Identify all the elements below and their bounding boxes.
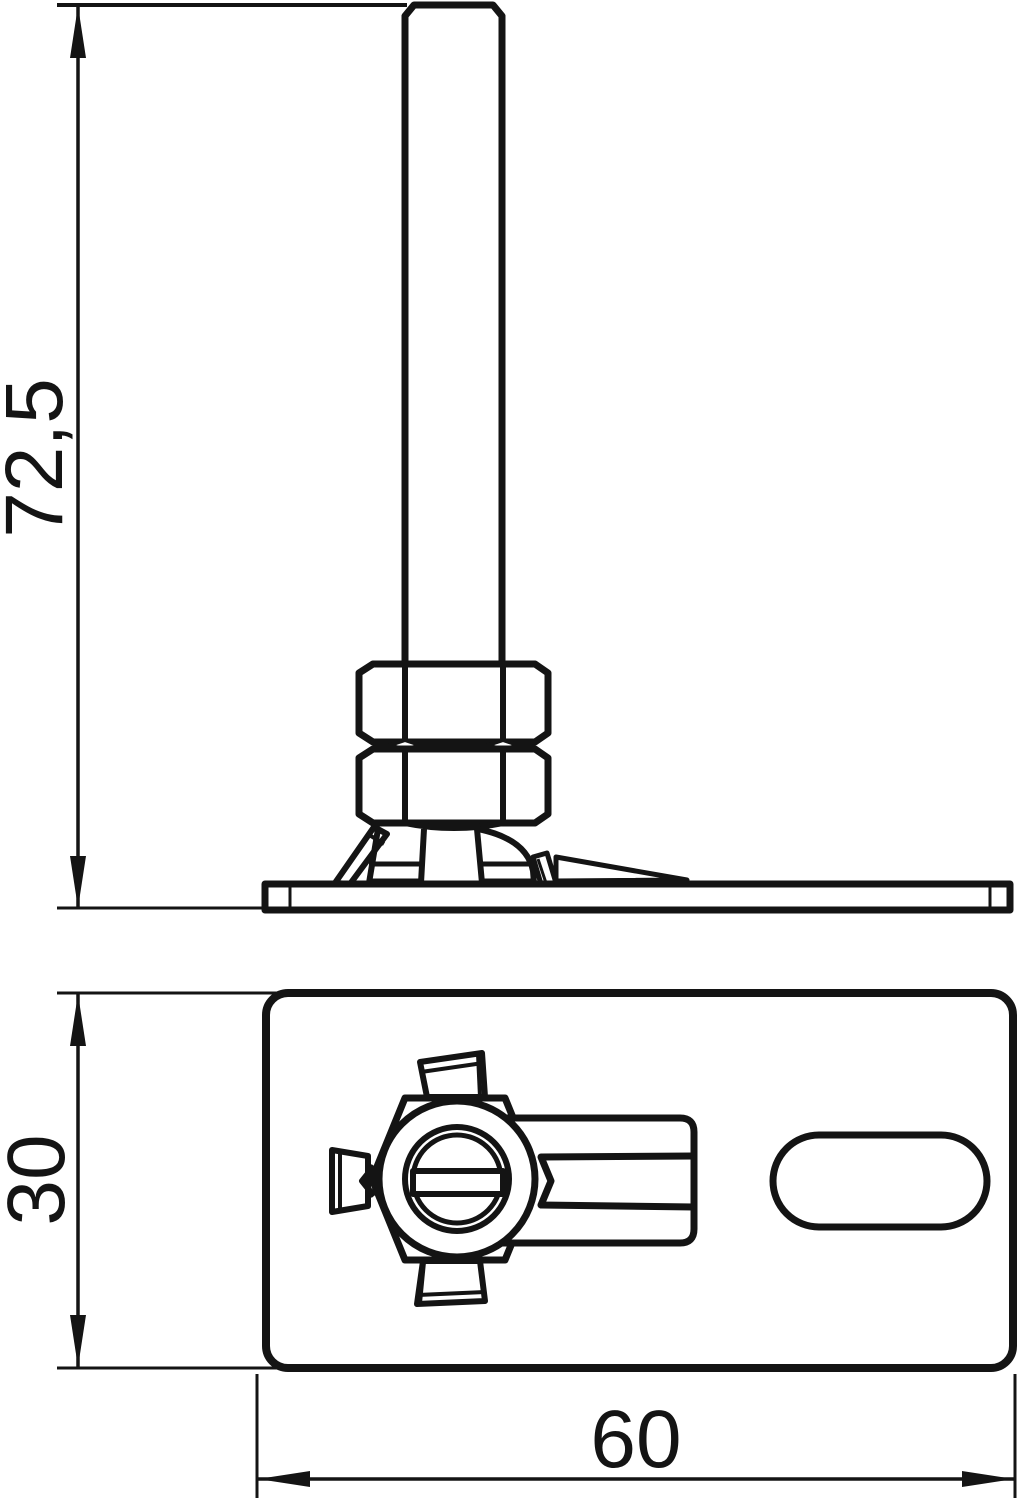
side-view: 72,5 [0,5,1010,910]
retainer-dome-right-arc [478,829,534,883]
dimension-label-height: 72,5 [0,378,80,538]
arrowhead-down [70,1315,86,1367]
retainer-flange-lines [369,864,533,881]
retainer-right-wedge-tooth [556,857,687,881]
quickfix-tab-bottom [417,1261,485,1304]
arrowhead-right [962,1471,1014,1487]
technical-drawing-canvas: 72,5 [0,0,1019,1500]
arrowhead-up [70,994,86,1046]
arrowhead-up [70,6,86,58]
arrowhead-left [258,1471,310,1487]
quickfix-retainer-side [335,827,687,884]
dimension-label-length: 60 [590,1394,681,1485]
dimension-plate-length: 60 [257,1374,1015,1498]
hex-nut-lower-side [359,749,548,828]
tab-top-edge-line [478,1054,480,1097]
quickfix-tab-top [420,1053,485,1097]
dimension-plate-width: 30 [0,993,286,1368]
screwdriver-slot [413,1171,503,1194]
threaded-rod-side [405,5,502,663]
slot-hole [773,1135,987,1227]
drawing-svg: 72,5 [0,0,1019,1500]
base-plate-side [265,884,1010,910]
arrowhead-down [70,856,86,908]
dimension-label-width: 30 [0,1134,82,1225]
top-view: 30 60 [0,993,1015,1498]
dimension-overall-height: 72,5 [0,5,407,908]
hex-nut-upper-side [359,664,548,742]
retainer-center-body [421,829,482,883]
